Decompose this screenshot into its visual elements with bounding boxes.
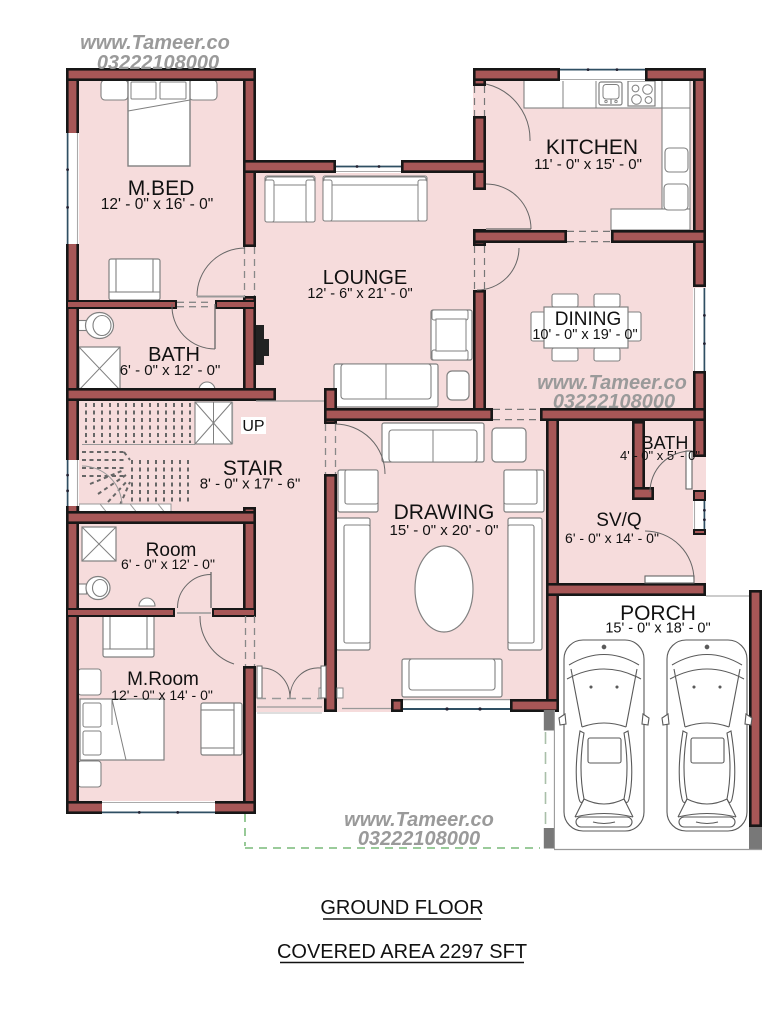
svg-text:12' - 0" x 14' - 0": 12' - 0" x 14' - 0" (111, 687, 213, 703)
svg-text:15' - 0" x 20' - 0": 15' - 0" x 20' - 0" (390, 522, 499, 539)
svg-text:4' - 0" x 5' - 0": 4' - 0" x 5' - 0" (620, 448, 700, 463)
svg-text:03222108000: 03222108000 (553, 391, 675, 413)
svg-text:DRAWING: DRAWING (394, 501, 495, 524)
svg-text:11' - 0" x 15' - 0": 11' - 0" x 15' - 0" (534, 156, 642, 173)
svg-text:6' - 0" x 12' - 0": 6' - 0" x 12' - 0" (121, 556, 215, 572)
svg-text:12' - 6" x 21' - 0": 12' - 6" x 21' - 0" (307, 286, 412, 302)
svg-text:15' - 0" x 18' - 0": 15' - 0" x 18' - 0" (605, 621, 710, 637)
svg-text:10' - 0" x 19' - 0": 10' - 0" x 19' - 0" (532, 327, 637, 343)
svg-text:6' - 0" x 14' - 0": 6' - 0" x 14' - 0" (565, 530, 659, 546)
svg-text:8' - 0" x 17' - 6": 8' - 0" x 17' - 6" (200, 476, 301, 493)
svg-text:UP: UP (242, 418, 264, 435)
svg-text:COVERED AREA 2297 SFT: COVERED AREA 2297 SFT (277, 941, 527, 963)
svg-text:www.Tameer.co: www.Tameer.co (80, 32, 230, 54)
svg-text:03222108000: 03222108000 (97, 52, 219, 74)
svg-text:12' - 0" x 16' - 0": 12' - 0" x 16' - 0" (101, 196, 214, 213)
svg-text:GROUND FLOOR: GROUND FLOOR (320, 897, 483, 919)
svg-text:SV/Q: SV/Q (596, 510, 641, 531)
svg-text:6' - 0" x 12' - 0": 6' - 0" x 12' - 0" (120, 362, 221, 379)
svg-text:03222108000: 03222108000 (358, 828, 480, 850)
